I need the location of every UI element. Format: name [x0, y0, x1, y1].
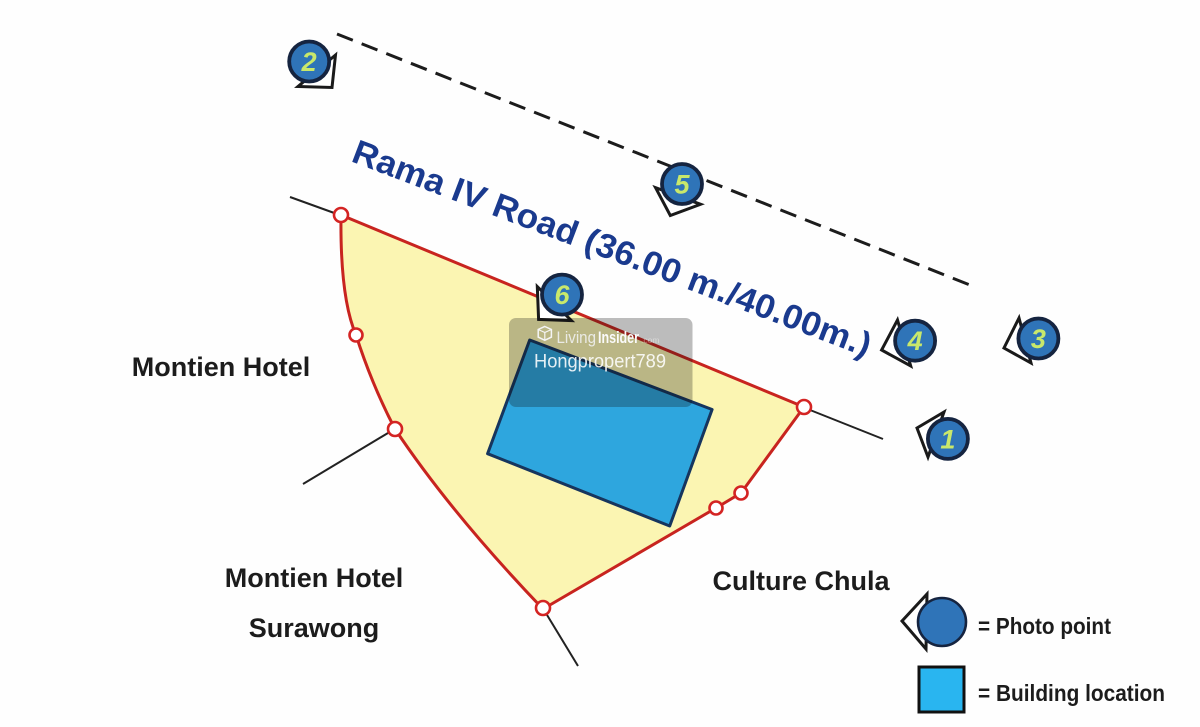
svg-text:1: 1: [940, 425, 955, 455]
svg-text:Hongpropert789: Hongpropert789: [534, 351, 666, 373]
svg-text:.com: .com: [641, 335, 659, 345]
svg-text:5: 5: [674, 170, 690, 200]
svg-text:Montien Hotel: Montien Hotel: [132, 352, 310, 382]
svg-text:6: 6: [554, 280, 570, 310]
svg-text:= Photo point: = Photo point: [978, 613, 1111, 639]
svg-text:= Building location: = Building location: [978, 680, 1165, 706]
svg-text:4: 4: [907, 326, 923, 356]
svg-text:3: 3: [1031, 324, 1046, 354]
svg-text:Culture Chula: Culture Chula: [712, 566, 890, 596]
svg-text:Insider: Insider: [598, 328, 639, 347]
svg-text:Living: Living: [557, 328, 597, 347]
svg-text:2: 2: [301, 47, 317, 77]
svg-text:Surawong: Surawong: [249, 613, 380, 643]
svg-text:Montien Hotel: Montien Hotel: [225, 563, 403, 593]
